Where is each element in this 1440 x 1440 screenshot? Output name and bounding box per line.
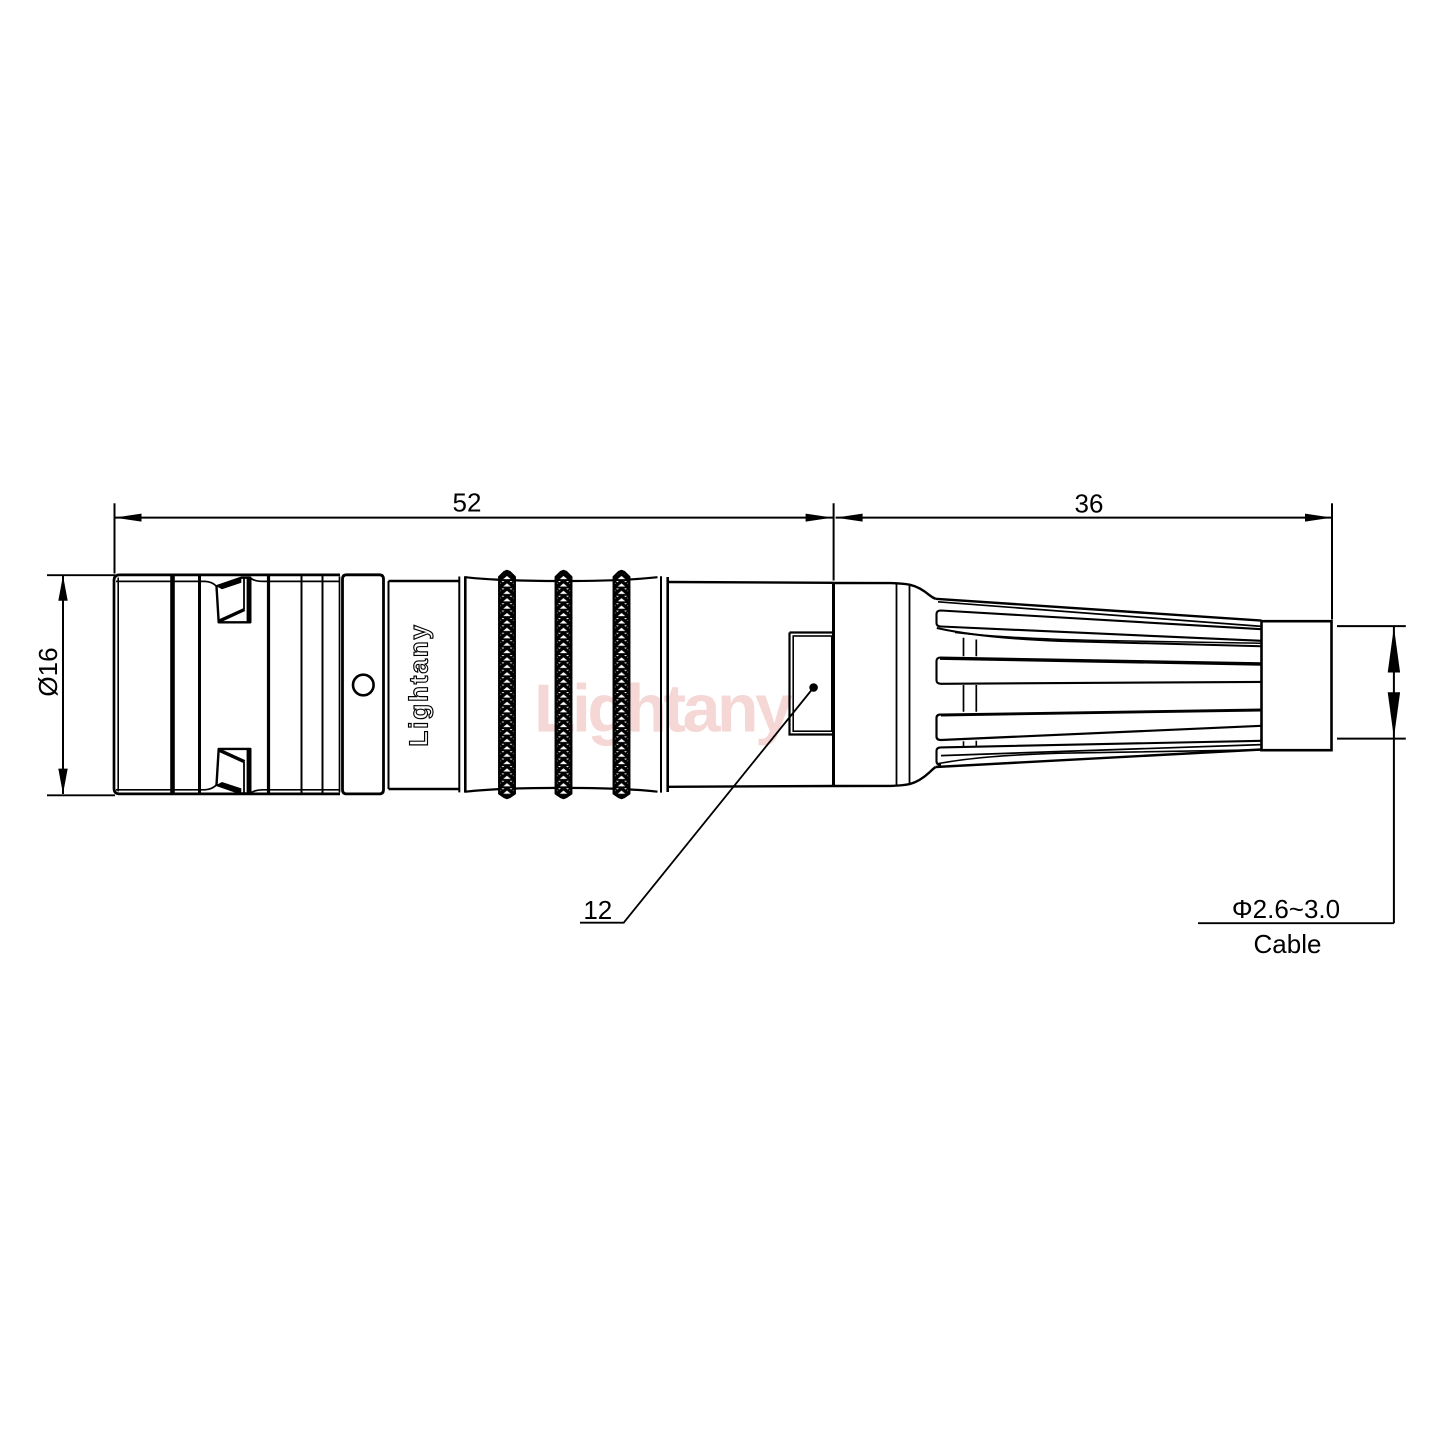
svg-text:12: 12: [583, 895, 612, 925]
svg-text:Ø16: Ø16: [33, 647, 63, 696]
svg-text:Lightany: Lightany: [534, 671, 793, 747]
svg-text:36: 36: [1075, 489, 1104, 519]
svg-text:52: 52: [453, 488, 482, 518]
svg-text:Cable: Cable: [1254, 929, 1322, 959]
svg-text:Φ2.6~3.0: Φ2.6~3.0: [1232, 894, 1340, 924]
svg-text:Lightany: Lightany: [404, 623, 434, 747]
